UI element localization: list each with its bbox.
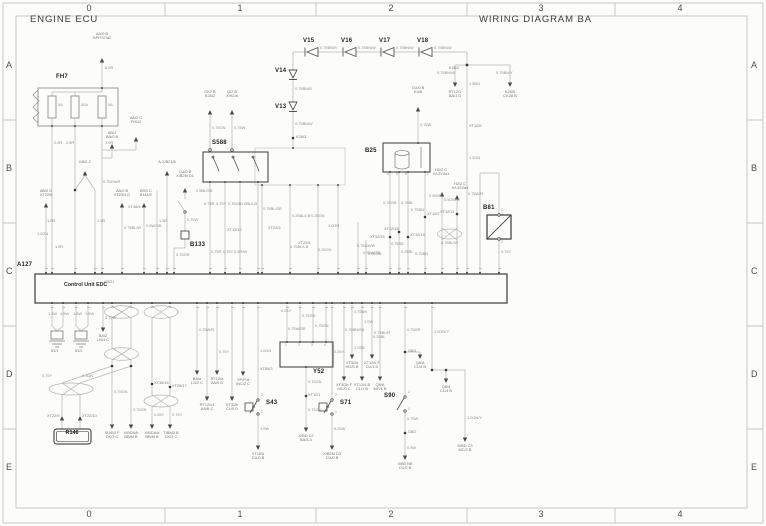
a127-pin (87, 302, 89, 304)
destination-ref: AA/0 B X/RT37/a2 (93, 32, 112, 41)
component-ref-b81: B81 (483, 205, 495, 212)
destination-ref: X/BD C3 MC/2 B (457, 444, 472, 453)
a127-pin-code (169, 307, 172, 308)
wire-label: 0.5GN/W (444, 198, 460, 202)
a127-pin (466, 272, 468, 274)
drawing-frame (3, 3, 763, 523)
grid-col-top-3: 3 (538, 3, 543, 13)
wire-label: 0.75BL/SB (263, 207, 282, 211)
wire-label: 0.75GN (308, 408, 321, 412)
wire-label: 0.75Y (216, 202, 226, 206)
a127-pin-code (389, 268, 392, 269)
grid-row-right-E: E (751, 462, 757, 472)
a127-pin-code (239, 268, 242, 269)
a127-pin (389, 272, 391, 274)
diode-icon-v15 (305, 48, 318, 57)
wire-label: 0.75GN (315, 324, 328, 328)
a127-pin (257, 272, 259, 274)
junction-label: G8/2 (408, 430, 416, 434)
a127-pin-code (365, 268, 368, 269)
a127-pin-code (379, 307, 382, 308)
destination-ref: X/B2M D3 CU/0 B (323, 452, 341, 461)
wire-label: 0.75W/SB (288, 327, 306, 331)
wire-label: 0.75BN/W (437, 71, 455, 75)
component-ref-v15: V15 (303, 38, 314, 45)
a127-pin (289, 272, 291, 274)
a127-pin-code (261, 268, 264, 269)
a127-pin (45, 272, 47, 274)
wire-label: 0.75SB (391, 242, 404, 246)
component-ref-y52: Y52 (313, 369, 324, 376)
wire-label: 0.75W (420, 123, 431, 127)
pin-number: 1 (261, 411, 263, 415)
wire-label: 0.25BL (373, 335, 385, 339)
junction-label: XT12/11 (440, 210, 454, 214)
a127-pin (431, 302, 433, 304)
a127-pin (111, 302, 113, 304)
a127-pin (257, 302, 259, 304)
a127-pin-code (143, 268, 146, 269)
junction-label: XT12/16 (384, 227, 399, 231)
diode-icon-v18 (419, 48, 432, 57)
wire-label: 0.75GB (228, 202, 241, 206)
a127-pin (173, 272, 175, 274)
a127-pin-code (173, 268, 176, 269)
a127-pin (242, 302, 244, 304)
arrows-down (101, 83, 512, 461)
fuse-rating: 30A (81, 103, 88, 107)
fuse-box-fh7 (33, 88, 118, 126)
a127-pin-code (407, 268, 410, 269)
wire-label: 0.75BN/W (295, 122, 313, 126)
a127-pin (231, 302, 233, 304)
sensor-b25 (383, 143, 430, 172)
wire-label: 0.75R (204, 202, 214, 206)
destination-ref: AA/2 B XT23/4 D (114, 189, 130, 198)
a127-pin (143, 272, 145, 274)
wire-label: 0.25BL/LB (292, 214, 310, 218)
a127-pin-code (156, 268, 159, 269)
wire-label: 0.75W (407, 417, 418, 421)
pin-number: 4 (324, 344, 326, 348)
diode-icon-v13 (289, 102, 297, 112)
wire-label: 0.75BN/W (358, 46, 376, 50)
wire-label: 0.25Y (281, 309, 291, 313)
wire-label: 1.5W (48, 312, 57, 316)
a127-pin-code (102, 307, 105, 308)
grid-col-top-2: 2 (388, 3, 393, 13)
a127-pin (224, 272, 226, 274)
resistor-b81 (487, 215, 511, 239)
wire-label: 0.75GR (407, 328, 420, 332)
a127-pin (498, 272, 500, 274)
wire-label: 0.75Y (172, 413, 182, 417)
destination-ref: H2/2 C X/LED/a1 (433, 168, 450, 177)
wire-label: 0.75GN/W (357, 244, 375, 248)
a127-pin (398, 272, 400, 274)
sensor-b133 (181, 231, 189, 239)
component-ref-r146: R146 (66, 431, 79, 437)
wire-label: 0.75BL/R (374, 331, 390, 335)
component-ref-v13: V13 (275, 104, 286, 111)
component-ref-v16: V16 (341, 38, 352, 45)
wire-label: 1.5GN (469, 156, 480, 160)
destination-ref: 6B/J BA/0 B (106, 131, 118, 140)
wire-label: 0.25Y (154, 413, 164, 417)
a127-pin-code (94, 268, 97, 269)
wire-label: 0.75W (234, 126, 245, 130)
a127-pin-code (242, 307, 245, 308)
grid-row-left-C: C (6, 266, 13, 276)
a127-pin-code (257, 307, 260, 308)
destination-ref: XT3/2b F MC/0 C (336, 383, 352, 392)
wire-label: 1.5R (97, 219, 105, 223)
junction-label: XT16/4 (128, 205, 141, 209)
wire-label: 2.5R (54, 141, 62, 145)
a127-pin (102, 302, 104, 304)
a127-pin-code (325, 307, 328, 308)
a127-pin-code (166, 268, 169, 269)
destination-ref: AA/2 C FH1/2 (130, 116, 142, 125)
junction-label: G8/1 (408, 349, 416, 353)
grid-col-bottom-3: 3 (538, 509, 543, 519)
wire-label: 0.75W (187, 218, 198, 222)
wire-label: 0.75Y (219, 350, 229, 354)
a127-pin-code (343, 307, 346, 308)
diode-symbols (289, 48, 432, 112)
destination-ref: CU/0 B X/B2M D1 (176, 170, 194, 179)
wire-label: 0.75BN/W (396, 46, 414, 50)
wire-label: 0.75R (211, 250, 221, 254)
wiring-diagram-canvas (0, 0, 766, 526)
component-ref-s588: S588 (212, 140, 227, 147)
grid-row-left-E: E (6, 462, 12, 472)
wire-label: 0.75Y (501, 250, 511, 254)
destination-ref: YP/P/d INC/2 C (236, 378, 250, 387)
wire-label: 1.5W (73, 312, 82, 316)
a127-pin (121, 272, 123, 274)
diode-icon-v14 (289, 70, 297, 80)
a127-pin (317, 272, 319, 274)
junction-label: XT26/17 (172, 384, 187, 388)
page-title: ENGINE ECU (30, 14, 98, 25)
wire-label: 2.5R (66, 141, 74, 145)
junction-label: XT22/10 (82, 414, 97, 418)
pin-number: 1 (285, 344, 287, 348)
destination-ref: Q8/A MC/1 B (374, 383, 387, 392)
a127-pin-code (312, 307, 315, 308)
wire-label: 0.75BN/W (434, 46, 452, 50)
wire-label: 0.75BL/LB (290, 245, 308, 249)
a127-pin-code (466, 268, 469, 269)
a127-pin-code (498, 268, 501, 269)
a127-pin (379, 302, 381, 304)
a127-pin (196, 302, 198, 304)
grid-col-bottom-4: 4 (677, 509, 682, 519)
destination-ref: T/BM3 B CK/2 C (163, 431, 178, 440)
component-ref-v18: V18 (417, 38, 428, 45)
pin-number: 6 (405, 173, 407, 177)
grid-col-top-1: 1 (237, 3, 242, 13)
a127-pin-code (51, 268, 54, 269)
diode-icon-v16 (343, 48, 356, 57)
wires-layer (46, 52, 510, 456)
grid-col-bottom-1: 1 (237, 509, 242, 519)
grid-col-top-4: 4 (677, 3, 682, 13)
junction-label: XT22/4 (298, 241, 311, 245)
a127-pin (74, 272, 76, 274)
a127-pin-code (130, 307, 133, 308)
wire-label: 0.75BL (401, 201, 413, 205)
destination-ref: Q8/d CL/4 B (440, 385, 452, 394)
a127-pin-code (206, 307, 209, 308)
junction-label: XT22/3 (268, 226, 281, 230)
grid-col-top-0: 0 (86, 3, 91, 13)
destination-ref: H2/2 C X/LED/a4 (452, 182, 469, 191)
a127-pin (62, 302, 64, 304)
a127-pin-code (87, 307, 90, 308)
grid-row-left-B: B (6, 163, 12, 173)
component-ref-s43: S43 (266, 400, 277, 407)
junction-label: 53/2 (75, 349, 83, 353)
component-ref-s90: S90 (384, 393, 395, 400)
wire-label: 1.0R (105, 141, 113, 145)
a127-pin-code (196, 307, 199, 308)
destination-ref: XT12/c F CU/1 D (364, 361, 380, 370)
destination-ref: X/BDA/d BB/M B (145, 431, 160, 440)
wiring-diagram-page: ENGINE ECU WIRING DIAGRAM BA FH7S588B25B… (0, 0, 766, 526)
pin-number: 4 (387, 173, 389, 177)
wire-label: 0.75BN/R (295, 87, 312, 91)
destination-ref: CU/0 B K4/8 (412, 86, 425, 95)
wire-label: 0.75W/R (199, 328, 214, 332)
a127-pin-code (317, 268, 320, 269)
wire-bottom-left (52, 305, 170, 429)
a127-pin (343, 302, 345, 304)
a127-pin (337, 272, 339, 274)
destination-ref: RT12/d AA/0 D (211, 377, 224, 386)
wire-label: 0.75Y (42, 374, 52, 378)
wire-label: 1.0GN (328, 224, 339, 228)
wire-label: 0.75BL/W (124, 226, 141, 230)
a127-pin-code (62, 307, 65, 308)
a127-pin (361, 302, 363, 304)
a127-pin-code (456, 268, 459, 269)
grid-col-bottom-0: 0 (86, 509, 91, 519)
a127-pin (299, 302, 301, 304)
pin-number: 5 (396, 173, 398, 177)
component-ref-b25: B25 (365, 148, 377, 155)
wire-label: 1.5GN/Y (434, 330, 449, 334)
a127-pin-code (431, 307, 434, 308)
pin-number: 2 (298, 344, 300, 348)
wire-label: 1.0W (260, 427, 269, 431)
junction-label: XT12/14 (410, 233, 425, 237)
wire-twist-crossings (62, 228, 457, 407)
wire-label: 1.0GN (37, 232, 48, 236)
a127-pin-code (45, 268, 48, 269)
a127-pin-code (289, 268, 292, 269)
a127-pin (206, 302, 208, 304)
diagram-title: WIRING DIAGRAM BA (479, 14, 592, 25)
wire-label: 0.75GN (302, 314, 315, 318)
component-ref-s71: S71 (340, 400, 351, 407)
pin-number: 3 (311, 344, 313, 348)
grid-row-right-D: D (751, 369, 758, 379)
component-ref-a127: A127 (17, 262, 32, 269)
wire-label: 0.75W/R (468, 192, 483, 196)
destination-ref: X/B0 NB CU/2 B (398, 462, 413, 471)
junction-label: XT12/15 (370, 235, 385, 239)
a127-pin (424, 272, 426, 274)
a127-pin (209, 272, 211, 274)
wire-label: 1.5W (60, 312, 69, 316)
a127-pin-code (337, 268, 340, 269)
junction-label: XT55/3 (260, 367, 273, 371)
a127-pin-code (257, 268, 260, 269)
a127-pin-code (357, 268, 360, 269)
destination-ref: RT12/c3 AA/B C (200, 403, 215, 412)
wire-label: 0.25W (334, 427, 345, 431)
a127-pin-code (111, 307, 114, 308)
a127-pin (286, 302, 288, 304)
a127-pin-code (441, 268, 444, 269)
a127-pin (169, 302, 171, 304)
wire-label: 0.75BN (411, 208, 424, 212)
wire-label: 0.75GN (308, 380, 321, 384)
junction-label: XT12/2 (427, 212, 440, 216)
destination-ref: Q/2 B X/K2/a (226, 90, 238, 99)
grid-row-right-A: A (751, 60, 757, 70)
wire-label: 1.5BN (469, 82, 480, 86)
destination-ref: SU/B3 F CK/3 C (105, 431, 120, 440)
wire-label: 0.5GN (82, 374, 93, 378)
a127-pin-code (286, 307, 289, 308)
a127-pin (51, 272, 53, 274)
a127-pin (371, 302, 373, 304)
wire-label: 0.75BL/W (441, 241, 458, 245)
destination-ref: K8/2-2 (79, 160, 90, 164)
wire-feeds-to-a127 (46, 65, 499, 272)
wire-label: 0.25Y (334, 350, 344, 354)
a127-pin-code (371, 307, 374, 308)
pin-number: 1 (335, 411, 337, 415)
a127-pin (51, 302, 53, 304)
junction-label: XT22/9 (47, 414, 60, 418)
a127-pin-code (224, 268, 227, 269)
wire-label: 0.75GN (114, 390, 127, 394)
a127-pin-code (361, 307, 364, 308)
wire-label: 1.0SB (354, 346, 365, 350)
pin-number: 2 (261, 394, 263, 398)
pin-number: 1 (408, 408, 410, 412)
a127-pin-code (101, 268, 104, 269)
switch-unit-s588 (203, 152, 268, 182)
wire-label: 0.25GN (311, 214, 324, 218)
grid-row-left-A: A (6, 60, 12, 70)
junction-label: K28/2 (449, 66, 459, 70)
wire-label: 0.5W/R (429, 194, 442, 198)
destination-ref: XT3/2b CL/0 D (226, 403, 239, 412)
wire-label: 1.5R (47, 219, 55, 223)
wire-label: 1.5W (85, 312, 94, 316)
wire-label: 0.5BL/SB (196, 189, 212, 193)
pin-number: 1 (427, 173, 429, 177)
a127-pin (151, 302, 153, 304)
a127-pin (239, 272, 241, 274)
destination-ref: X/BD C2 BA/3-4 (298, 434, 313, 443)
wire-label: 1.5R (55, 245, 63, 249)
ground-posts (49, 331, 89, 347)
a127-pin (261, 272, 263, 274)
s588-contacts (212, 156, 259, 171)
wire-label: 0.25GN (318, 248, 331, 252)
a127-pin (404, 302, 406, 304)
wire-label: 0.75BN (415, 252, 428, 256)
destination-ref: X/BDA/b BB/M B (124, 431, 139, 440)
pin-number: 2 (335, 394, 337, 398)
junction-label: XT12/6 (469, 124, 482, 128)
fuse-rating: 5A (58, 103, 63, 107)
a127-pin (216, 302, 218, 304)
component-ref-v14: V14 (275, 68, 286, 75)
a127-pin-code (51, 307, 54, 308)
wire-label: 0.75GR (383, 201, 396, 205)
a127-pin-code (231, 307, 234, 308)
destination-ref: B0/1 C 8144/2 (140, 189, 152, 198)
wire-label: 0.25BL (401, 250, 413, 254)
a127-pin (130, 302, 132, 304)
a127-pin (101, 272, 103, 274)
wire-label: 0.75BN/SB (345, 328, 364, 332)
a127-pin-code (209, 268, 212, 269)
a127-pin (479, 272, 481, 274)
destination-ref: RT12/1 BA/1 D (449, 90, 462, 99)
wire-label: 0.5R/W (234, 250, 247, 254)
a127-pin (407, 272, 409, 274)
grid-row-right-B: B (751, 163, 757, 173)
pin-number: 2 (501, 241, 503, 245)
wire-label: 0.75GN (212, 126, 225, 130)
grid-row-right-C: C (751, 266, 758, 276)
destination-ref: BA/2 LN/1 C (97, 334, 109, 343)
a127-pin (357, 272, 359, 274)
grid-col-bottom-2: 2 (388, 509, 393, 519)
a127-pin-code (398, 268, 401, 269)
diode-icon-v17 (381, 48, 394, 57)
a127-pin (156, 272, 158, 274)
wire-label: 0.75W (105, 316, 116, 320)
destination-ref: XT16/d CU/0 B (252, 452, 265, 461)
control-unit-sup: A30/31 (104, 281, 114, 285)
wire-label: 1.0GN (260, 349, 271, 353)
destination-ref: XT3/2d HG/3 B (346, 361, 359, 370)
wire-label: 0.75Y (223, 250, 233, 254)
pin-number: 1 (501, 209, 503, 213)
destination-ref: Q8/A CL/4 B (414, 361, 426, 370)
a127-pin (166, 272, 168, 274)
a127-pin-code (74, 268, 77, 269)
component-ref-b133: B133 (190, 242, 205, 249)
wire-label: 1.0BL/LB (241, 202, 257, 206)
wire-label: 6.0R (105, 66, 113, 70)
a127-pin-code (404, 307, 407, 308)
a127-pin (325, 302, 327, 304)
fuse-rating: 5A (108, 103, 113, 107)
a127-pin (365, 272, 367, 274)
wire-label: 0.25GN (368, 252, 381, 256)
a127-pin-code (121, 268, 124, 269)
